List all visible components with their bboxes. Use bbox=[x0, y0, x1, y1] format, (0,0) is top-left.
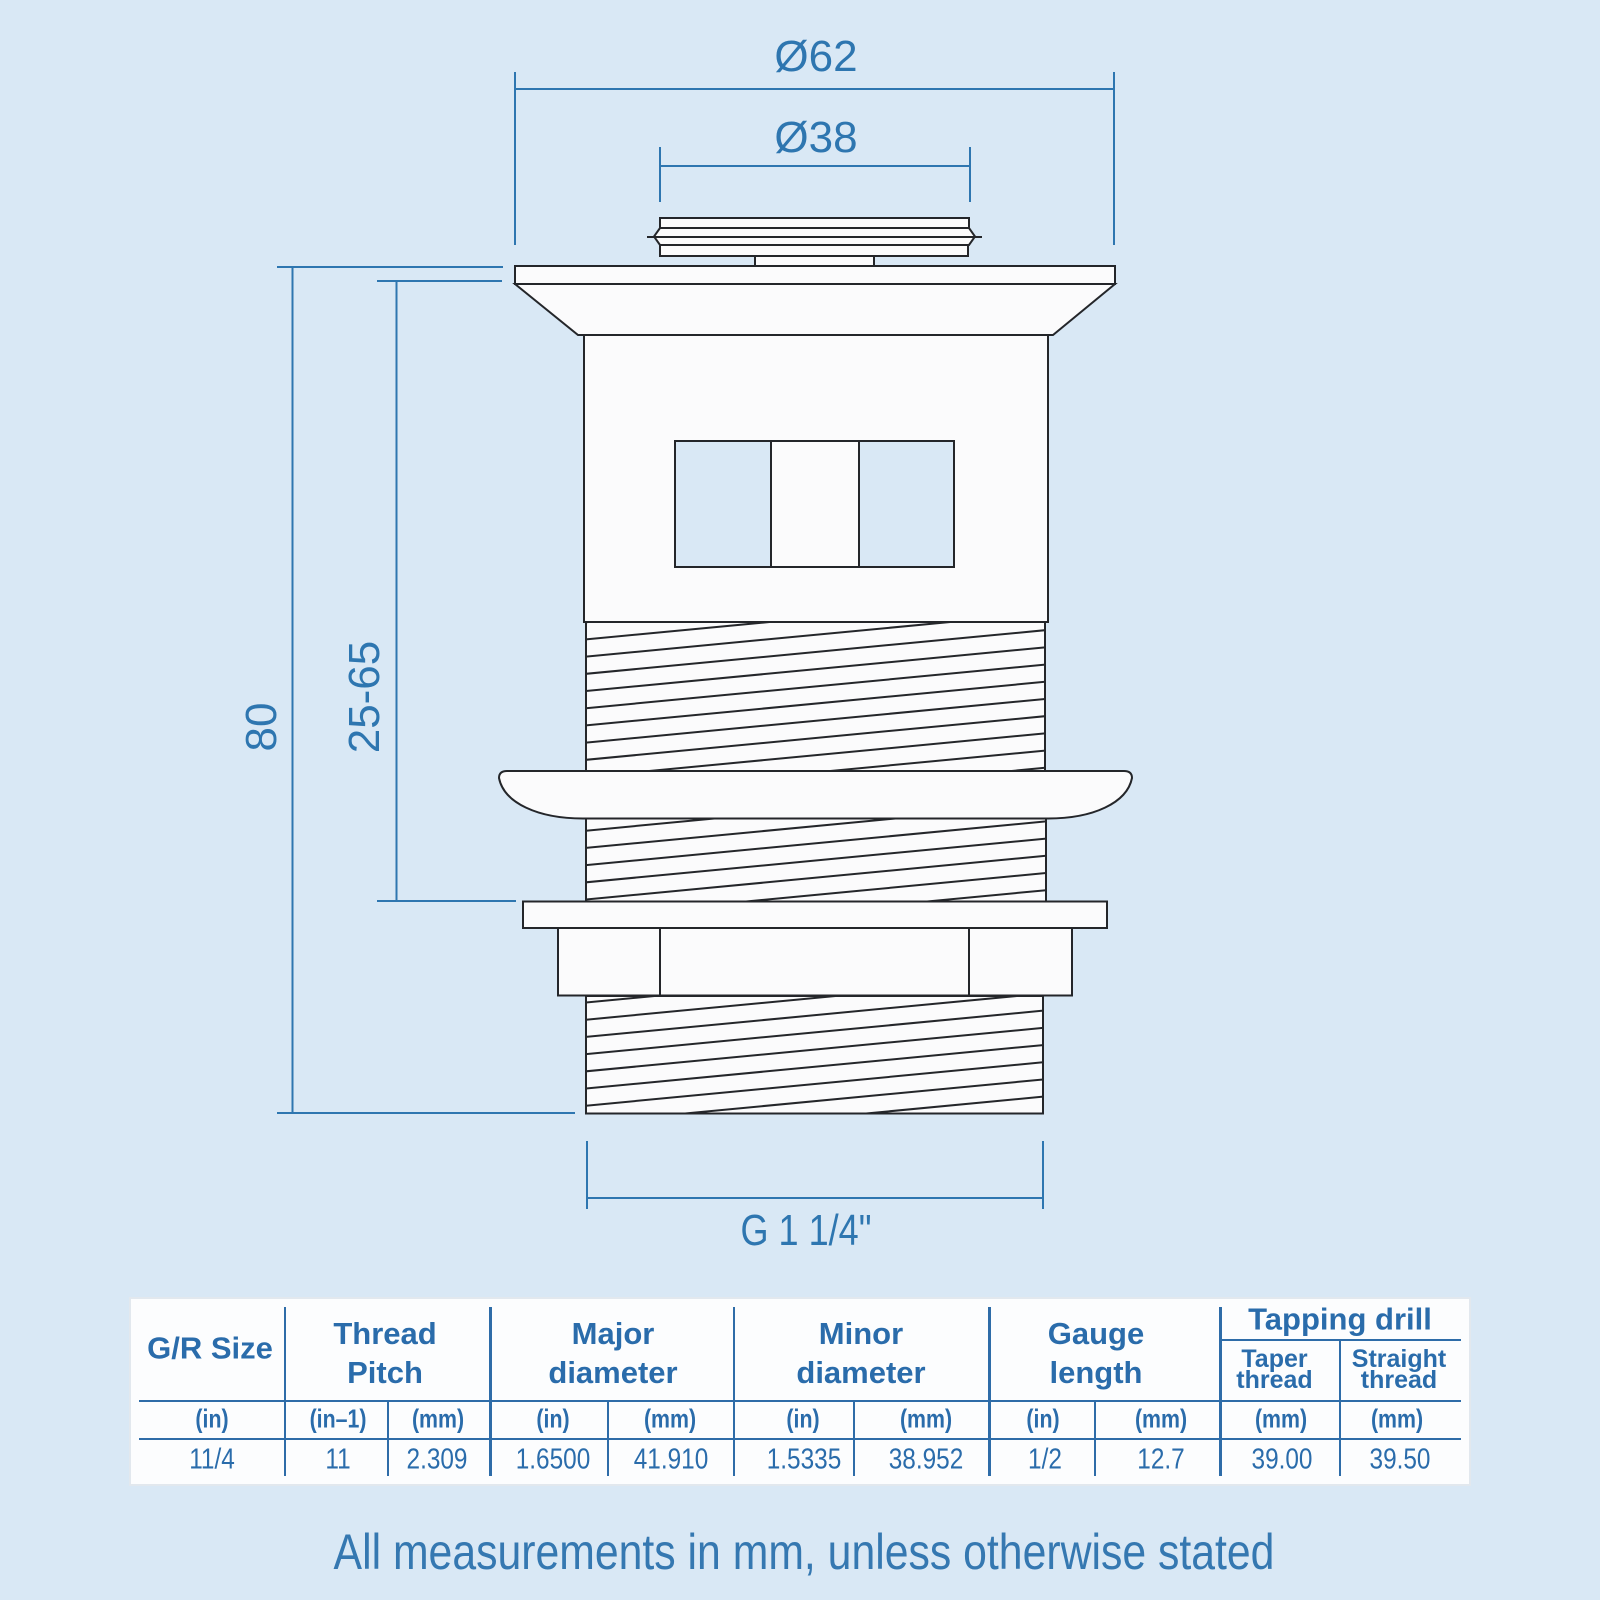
svg-text:G 1 1/4": G 1 1/4" bbox=[741, 1206, 872, 1255]
svg-text:Ø62: Ø62 bbox=[774, 32, 857, 81]
svg-text:Ø38: Ø38 bbox=[774, 113, 857, 162]
svg-text:25-65: 25-65 bbox=[340, 641, 389, 754]
svg-text:80: 80 bbox=[237, 703, 286, 752]
